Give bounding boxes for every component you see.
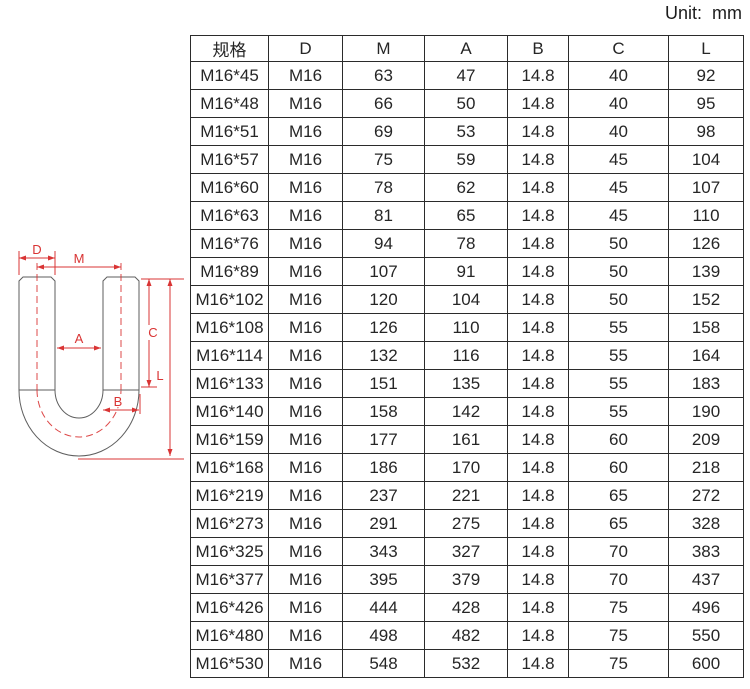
value-cell: 14.8 [508,566,569,594]
value-cell: 14.8 [508,258,569,286]
value-cell: 40 [569,118,669,146]
table-row: M16*51M16695314.84098 [191,118,744,146]
value-cell: 14.8 [508,426,569,454]
spec-cell: M16*63 [191,202,269,230]
column-header: B [508,36,569,62]
value-cell: 120 [343,286,425,314]
value-cell: M16 [269,650,343,678]
value-cell: 59 [425,146,508,174]
value-cell: 379 [425,566,508,594]
value-cell: 132 [343,342,425,370]
value-cell: 110 [669,202,744,230]
value-cell: 65 [569,510,669,538]
value-cell: M16 [269,594,343,622]
table-row: M16*530M1654853214.875600 [191,650,744,678]
value-cell: 158 [343,398,425,426]
value-cell: 78 [425,230,508,258]
value-cell: M16 [269,146,343,174]
value-cell: 94 [343,230,425,258]
value-cell: 126 [343,314,425,342]
value-cell: 116 [425,342,508,370]
spec-cell: M16*140 [191,398,269,426]
table-row: M16*159M1617716114.860209 [191,426,744,454]
value-cell: 126 [669,230,744,258]
value-cell: 50 [569,258,669,286]
value-cell: 328 [669,510,744,538]
value-cell: 92 [669,62,744,90]
spec-cell: M16*108 [191,314,269,342]
column-header: A [425,36,508,62]
value-cell: 437 [669,566,744,594]
dim-label-d: D [32,242,41,257]
value-cell: 186 [343,454,425,482]
dim-label-a: A [75,331,84,346]
spec-cell: M16*426 [191,594,269,622]
value-cell: 78 [343,174,425,202]
value-cell: 14.8 [508,538,569,566]
spec-cell: M16*377 [191,566,269,594]
value-cell: M16 [269,426,343,454]
value-cell: 14.8 [508,510,569,538]
spec-cell: M16*89 [191,258,269,286]
spec-cell: M16*530 [191,650,269,678]
value-cell: 45 [569,202,669,230]
value-cell: 55 [569,370,669,398]
table-row: M16*76M16947814.850126 [191,230,744,258]
value-cell: 60 [569,426,669,454]
table-row: M16*168M1618617014.860218 [191,454,744,482]
spec-table-body: M16*45M16634714.84092M16*48M16665014.840… [191,62,744,678]
spec-cell: M16*133 [191,370,269,398]
value-cell: 190 [669,398,744,426]
value-cell: 14.8 [508,650,569,678]
value-cell: 158 [669,314,744,342]
centerlines [37,263,121,437]
column-header: C [569,36,669,62]
value-cell: 135 [425,370,508,398]
value-cell: 14.8 [508,314,569,342]
dim-label-m: M [74,251,85,266]
dim-M: M [37,251,121,267]
column-header: D [269,36,343,62]
value-cell: 98 [669,118,744,146]
table-row: M16*57M16755914.845104 [191,146,744,174]
spec-cell: M16*76 [191,230,269,258]
value-cell: 343 [343,538,425,566]
value-cell: M16 [269,174,343,202]
value-cell: 237 [343,482,425,510]
value-cell: M16 [269,538,343,566]
spec-cell: M16*168 [191,454,269,482]
spec-cell: M16*60 [191,174,269,202]
table-row: M16*108M1612611014.855158 [191,314,744,342]
value-cell: 383 [669,538,744,566]
value-cell: M16 [269,454,343,482]
value-cell: 151 [343,370,425,398]
value-cell: 55 [569,398,669,426]
dim-D: D [19,242,55,275]
value-cell: M16 [269,90,343,118]
value-cell: 50 [569,230,669,258]
value-cell: 45 [569,146,669,174]
ubolt-diagram: D M A C L B [0,230,190,470]
value-cell: M16 [269,314,343,342]
value-cell: 66 [343,90,425,118]
value-cell: M16 [269,370,343,398]
value-cell: 53 [425,118,508,146]
value-cell: M16 [269,622,343,650]
value-cell: 65 [569,482,669,510]
table-row: M16*133M1615113514.855183 [191,370,744,398]
value-cell: 327 [425,538,508,566]
value-cell: 183 [669,370,744,398]
value-cell: 532 [425,650,508,678]
table-row: M16*45M16634714.84092 [191,62,744,90]
value-cell: M16 [269,510,343,538]
value-cell: 170 [425,454,508,482]
value-cell: 272 [669,482,744,510]
spec-cell: M16*273 [191,510,269,538]
value-cell: 75 [569,594,669,622]
spec-cell: M16*51 [191,118,269,146]
value-cell: M16 [269,62,343,90]
value-cell: 63 [343,62,425,90]
value-cell: 55 [569,342,669,370]
value-cell: 45 [569,174,669,202]
value-cell: 70 [569,566,669,594]
value-cell: 152 [669,286,744,314]
value-cell: 139 [669,258,744,286]
value-cell: 75 [343,146,425,174]
value-cell: 482 [425,622,508,650]
value-cell: 65 [425,202,508,230]
table-row: M16*480M1649848214.875550 [191,622,744,650]
value-cell: 104 [669,146,744,174]
value-cell: 291 [343,510,425,538]
value-cell: 14.8 [508,62,569,90]
column-header: M [343,36,425,62]
value-cell: 91 [425,258,508,286]
value-cell: 50 [569,286,669,314]
value-cell: M16 [269,566,343,594]
value-cell: 14.8 [508,454,569,482]
value-cell: 104 [425,286,508,314]
value-cell: 221 [425,482,508,510]
value-cell: 600 [669,650,744,678]
value-cell: 209 [669,426,744,454]
value-cell: 14.8 [508,398,569,426]
table-row: M16*140M1615814214.855190 [191,398,744,426]
table-row: M16*426M1644442814.875496 [191,594,744,622]
value-cell: 14.8 [508,342,569,370]
value-cell: 14.8 [508,202,569,230]
value-cell: 14.8 [508,174,569,202]
spec-table: 规格DMABCL M16*45M16634714.84092M16*48M166… [190,35,744,678]
table-row: M16*89M161079114.850139 [191,258,744,286]
value-cell: 550 [669,622,744,650]
spec-cell: M16*219 [191,482,269,510]
value-cell: 161 [425,426,508,454]
spec-cell: M16*102 [191,286,269,314]
value-cell: 444 [343,594,425,622]
dim-B: B [103,394,140,414]
value-cell: 14.8 [508,594,569,622]
value-cell: 428 [425,594,508,622]
table-row: M16*273M1629127514.865328 [191,510,744,538]
value-cell: M16 [269,118,343,146]
value-cell: 177 [343,426,425,454]
dim-label-l: L [156,368,163,383]
spec-cell: M16*48 [191,90,269,118]
column-header: 规格 [191,36,269,62]
value-cell: 395 [343,566,425,594]
value-cell: 498 [343,622,425,650]
value-cell: 81 [343,202,425,230]
value-cell: M16 [269,286,343,314]
value-cell: 70 [569,538,669,566]
table-row: M16*60M16786214.845107 [191,174,744,202]
spec-cell: M16*57 [191,146,269,174]
unit-label: Unit: mm [665,3,742,24]
value-cell: 14.8 [508,286,569,314]
value-cell: 218 [669,454,744,482]
value-cell: 14.8 [508,146,569,174]
value-cell: M16 [269,230,343,258]
value-cell: M16 [269,258,343,286]
value-cell: M16 [269,202,343,230]
header-row: 规格DMABCL [191,36,744,62]
table-row: M16*63M16816514.845110 [191,202,744,230]
table-row: M16*325M1634332714.870383 [191,538,744,566]
value-cell: 95 [669,90,744,118]
table-row: M16*219M1623722114.865272 [191,482,744,510]
value-cell: 62 [425,174,508,202]
value-cell: 14.8 [508,90,569,118]
value-cell: M16 [269,482,343,510]
spec-cell: M16*325 [191,538,269,566]
spec-cell: M16*45 [191,62,269,90]
value-cell: 50 [425,90,508,118]
spec-cell: M16*159 [191,426,269,454]
table-row: M16*377M1639537914.870437 [191,566,744,594]
value-cell: 275 [425,510,508,538]
dim-L: L [78,279,184,459]
value-cell: 75 [569,650,669,678]
value-cell: M16 [269,398,343,426]
value-cell: 14.8 [508,482,569,510]
value-cell: 14.8 [508,118,569,146]
spec-cell: M16*480 [191,622,269,650]
value-cell: 69 [343,118,425,146]
value-cell: 548 [343,650,425,678]
value-cell: 164 [669,342,744,370]
value-cell: 107 [669,174,744,202]
column-header: L [669,36,744,62]
value-cell: 142 [425,398,508,426]
table-row: M16*114M1613211614.855164 [191,342,744,370]
table-row: M16*102M1612010414.850152 [191,286,744,314]
value-cell: 110 [425,314,508,342]
value-cell: 496 [669,594,744,622]
value-cell: 14.8 [508,230,569,258]
dim-label-b: B [114,394,123,409]
value-cell: 107 [343,258,425,286]
value-cell: 55 [569,314,669,342]
value-cell: M16 [269,342,343,370]
value-cell: 40 [569,62,669,90]
value-cell: 75 [569,622,669,650]
value-cell: 40 [569,90,669,118]
table-row: M16*48M16665014.84095 [191,90,744,118]
spec-cell: M16*114 [191,342,269,370]
dim-label-c: C [148,325,157,340]
value-cell: 47 [425,62,508,90]
value-cell: 14.8 [508,622,569,650]
value-cell: 60 [569,454,669,482]
page: Unit: mm [0,0,750,689]
dim-A: A [57,331,101,348]
value-cell: 14.8 [508,370,569,398]
